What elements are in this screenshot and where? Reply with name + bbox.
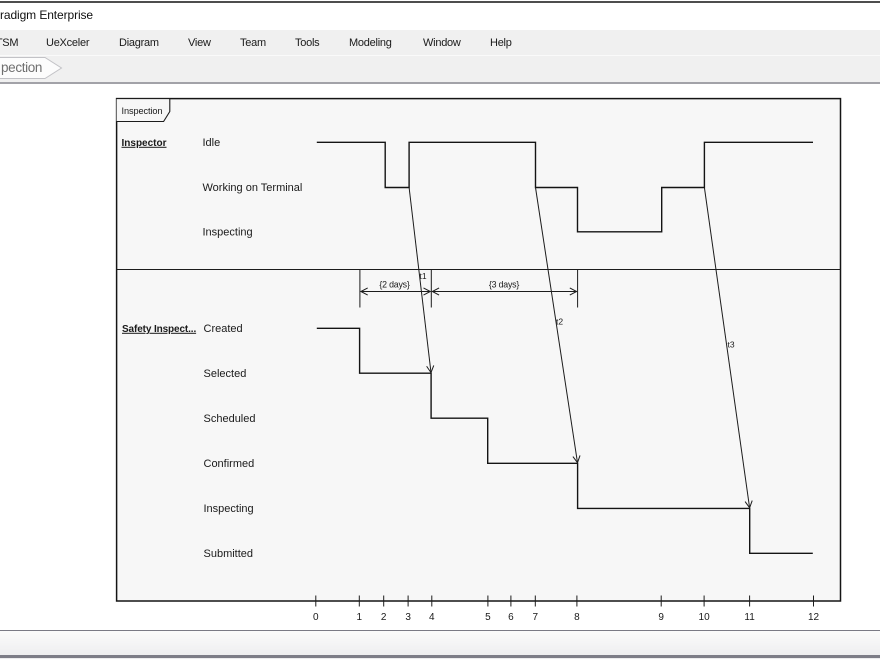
- svg-text:Selected: Selected: [204, 368, 247, 380]
- svg-text:{2 days}: {2 days}: [379, 279, 409, 289]
- svg-text:11: 11: [744, 612, 755, 623]
- svg-text:Confirmed: Confirmed: [204, 458, 255, 470]
- svg-text:Submitted: Submitted: [204, 548, 254, 560]
- svg-text:t2: t2: [556, 317, 563, 327]
- svg-text:{3 days}: {3 days}: [489, 279, 519, 289]
- svg-text:Inspection: Inspection: [122, 106, 163, 116]
- svg-text:2: 2: [381, 612, 387, 623]
- svg-text:Safety Inspect...: Safety Inspect...: [122, 324, 196, 335]
- svg-text:1: 1: [357, 612, 363, 623]
- svg-text:Inspecting: Inspecting: [203, 226, 253, 238]
- svg-text:5: 5: [485, 612, 491, 623]
- svg-text:t3: t3: [728, 340, 735, 350]
- svg-text:9: 9: [658, 612, 664, 623]
- svg-text:0: 0: [313, 612, 319, 623]
- svg-text:4: 4: [429, 612, 435, 623]
- svg-text:t1: t1: [420, 271, 427, 281]
- svg-text:Working on Terminal: Working on Terminal: [203, 182, 303, 194]
- svg-text:Created: Created: [204, 323, 243, 335]
- svg-text:7: 7: [533, 612, 539, 623]
- svg-text:Inspecting: Inspecting: [204, 503, 254, 515]
- svg-text:8: 8: [574, 612, 580, 623]
- svg-text:3: 3: [405, 612, 411, 623]
- svg-text:Idle: Idle: [203, 137, 221, 149]
- svg-text:Scheduled: Scheduled: [204, 413, 256, 425]
- svg-text:10: 10: [699, 612, 711, 623]
- svg-text:12: 12: [808, 612, 820, 623]
- svg-text:6: 6: [508, 612, 514, 623]
- svg-text:Inspector: Inspector: [122, 138, 167, 149]
